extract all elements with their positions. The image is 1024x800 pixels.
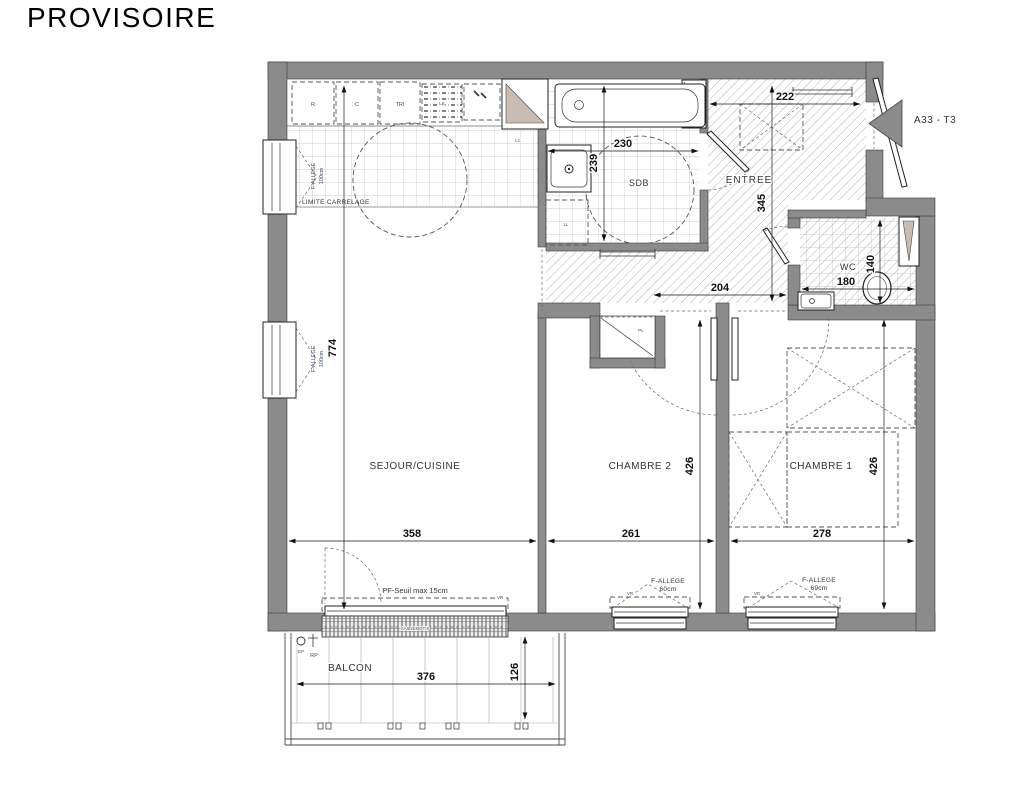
- floor-plan-drawing: 774 358 261 278 426 426: [0, 0, 1024, 800]
- closet-pl: [600, 316, 655, 358]
- kitchen-tile-floor: [287, 127, 538, 207]
- vr-label-sejour: VR: [497, 595, 504, 600]
- furniture-chambre1: [729, 348, 915, 527]
- wall-wc-top: [788, 210, 866, 218]
- note-pf-seuil: PF-Seuil max 15cm: [382, 586, 447, 595]
- window-height-chambre1: 69cm: [810, 585, 827, 592]
- washbasin: [547, 145, 591, 192]
- window-type-left-lower: F-ALLEGE: [311, 345, 317, 372]
- window-height-chambre2: 60cm: [659, 586, 676, 593]
- dim-label: 126: [509, 663, 521, 681]
- wall-entry-mid: [866, 150, 883, 202]
- chambre1-door-leaf: [732, 318, 738, 380]
- sink-mark-2: [481, 93, 486, 98]
- dim-label: 230: [614, 138, 632, 150]
- sink-mark: [474, 91, 479, 96]
- dim-label: 204: [711, 282, 730, 294]
- dim-balcon-depth: 126: [509, 637, 525, 719]
- window-height-left-upper: 100cm: [319, 167, 325, 184]
- ep-label: EP: [298, 649, 304, 654]
- room-label-chambre2: CHAMBRE 2: [609, 461, 672, 472]
- unit-label: A33 - T3: [914, 115, 956, 126]
- floor-plan-canvas: PROVISOIRE: [0, 0, 1024, 800]
- dim-chambre1-width: 278: [731, 528, 914, 541]
- window-type-left-upper: F-ALLEGE: [311, 162, 317, 189]
- chambre1-door-swing: [732, 318, 829, 415]
- window-left-lower: [263, 322, 317, 398]
- dim-label: 222: [776, 91, 794, 103]
- rp-label: RP: [310, 653, 318, 659]
- room-label-balcon: BALCON: [328, 663, 372, 674]
- dim-label: 180: [837, 276, 855, 288]
- balcony-feet: [318, 723, 528, 729]
- dim-label: 774: [327, 338, 339, 357]
- wall-closet-right: [655, 316, 665, 368]
- closet-label: PL: [638, 328, 644, 333]
- dim-label: 426: [684, 457, 696, 475]
- note-caillebotis: CAILLEBOTIS: [400, 626, 429, 631]
- room-label-sejour: SEJOUR/CUISINE: [370, 461, 461, 472]
- wall-top: [268, 62, 883, 79]
- wc-washbasin: [798, 292, 834, 310]
- wall-closet-bottom: [590, 358, 665, 368]
- wall-chambre1-chambre2: [716, 303, 729, 613]
- dim-chambre2-height: 426: [684, 320, 700, 609]
- appliance-label-le: LE: [439, 101, 445, 106]
- room-label-chambre1: CHAMBRE 1: [790, 461, 853, 472]
- dim-label: 376: [417, 671, 435, 683]
- room-label-wc: WC: [840, 262, 856, 272]
- kitchen-shutter-box: [502, 79, 548, 129]
- dim-label: 345: [756, 194, 768, 212]
- wall-sdb-entree-b: [700, 190, 708, 251]
- window-wc: [899, 217, 919, 266]
- vr-label-chambre2: VR: [627, 591, 634, 596]
- room-label-sdb: SDB: [629, 178, 649, 188]
- window-type-chambre2: F-ALLEGE: [651, 578, 685, 585]
- dim-chambre2-width: 261: [548, 528, 714, 541]
- appliance-label-r: R: [311, 102, 315, 108]
- dim-label: 261: [622, 528, 640, 540]
- window-bay-sejour: [322, 598, 508, 637]
- appliance-label-tri: TRI: [396, 102, 405, 108]
- bay-door-swing: [325, 548, 381, 604]
- window-type-chambre1: F-ALLEGE: [802, 577, 836, 584]
- chambre2-door-leaf: [711, 318, 717, 380]
- dim-label: 278: [813, 528, 831, 540]
- dim-label: 140: [865, 255, 877, 273]
- duct-label-lc: LC: [515, 138, 522, 143]
- wall-sdb-bottom: [546, 243, 708, 251]
- wall-right: [916, 216, 935, 631]
- balcony: [285, 633, 565, 745]
- appliance-sink-unit: [464, 84, 500, 120]
- dim-sejour-width: 358: [289, 528, 536, 541]
- window-chambre2: [610, 584, 690, 629]
- room-label-entree: ENTREE: [726, 175, 773, 186]
- appliance-label-c: C: [355, 102, 359, 108]
- wall-wc-left-a: [788, 218, 800, 228]
- washing-machine-label: LL: [563, 222, 569, 227]
- window-height-left-lower: 100cm: [319, 350, 325, 367]
- ep-drain-icon: [297, 637, 305, 645]
- dim-label: 239: [588, 154, 600, 172]
- wall-jog: [866, 198, 935, 216]
- bathtub: [555, 84, 705, 127]
- wall-sejour-chambre2: [538, 312, 546, 613]
- dim-label: 358: [403, 528, 421, 540]
- rp-flag-icon: [308, 634, 318, 647]
- dim-label: 426: [868, 457, 880, 475]
- vr-label-chambre1: VR: [754, 591, 761, 596]
- note-limite-carrelage: LIMITE CARRELAGE: [302, 199, 370, 206]
- dim-chambre1-height: 426: [868, 320, 884, 609]
- wardrobe: [787, 432, 898, 527]
